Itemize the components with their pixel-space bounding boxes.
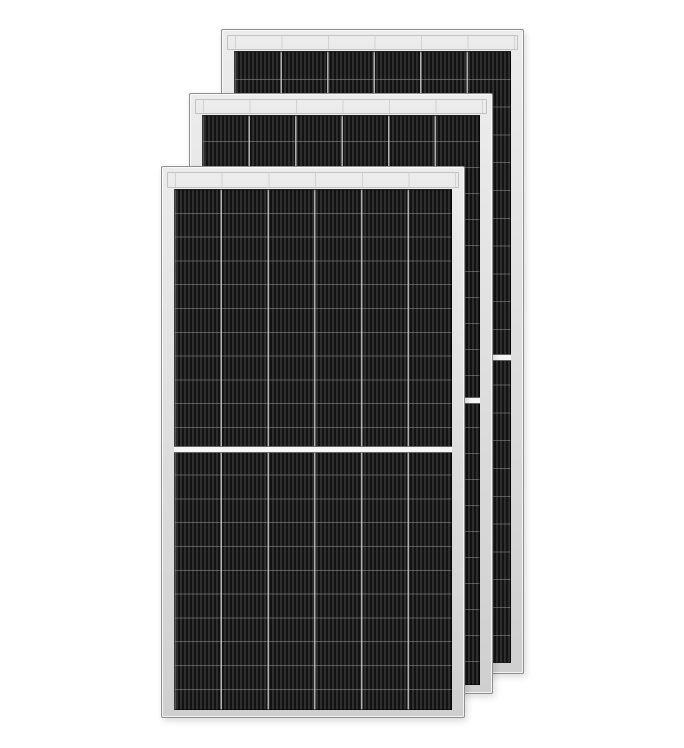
product-image [0, 0, 684, 748]
top-busbar-strip [167, 172, 459, 188]
cell-grid [174, 189, 452, 710]
half-cut-divider [174, 447, 452, 452]
top-busbar-strip [195, 99, 487, 114]
solar-panel-front [161, 166, 465, 718]
top-busbar-strip [227, 35, 518, 50]
